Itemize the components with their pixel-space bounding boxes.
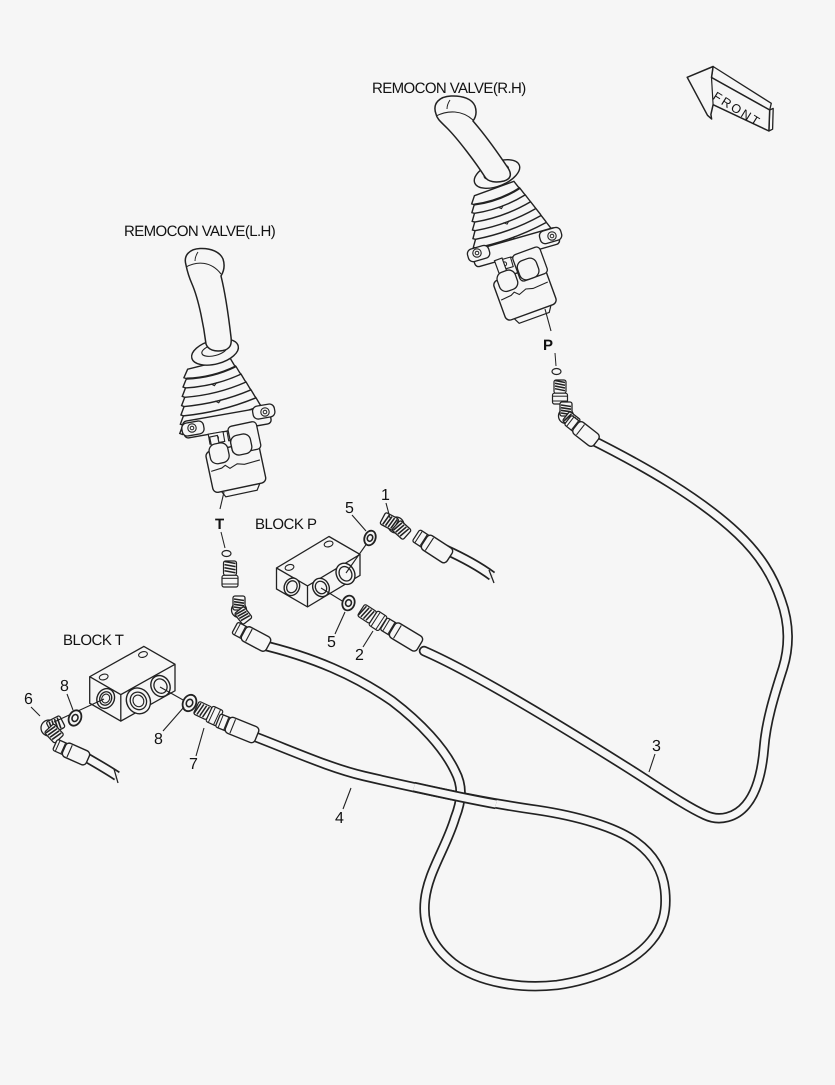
svg-text:5: 5: [327, 634, 336, 651]
svg-text:5: 5: [345, 500, 354, 517]
svg-text:1: 1: [381, 487, 390, 504]
svg-text:REMOCON VALVE(R.H): REMOCON VALVE(R.H): [372, 80, 526, 97]
svg-text:BLOCK P: BLOCK P: [255, 516, 317, 533]
svg-text:T: T: [215, 516, 224, 533]
svg-text:3: 3: [652, 738, 661, 755]
svg-text:REMOCON VALVE(L.H): REMOCON VALVE(L.H): [124, 223, 276, 240]
svg-text:8: 8: [154, 731, 163, 748]
svg-text:6: 6: [24, 691, 33, 708]
svg-text:2: 2: [355, 647, 364, 664]
svg-text:P: P: [543, 337, 553, 354]
svg-text:7: 7: [189, 756, 198, 773]
svg-text:4: 4: [335, 810, 344, 827]
svg-text:BLOCK T: BLOCK T: [63, 632, 124, 649]
svg-text:8: 8: [60, 678, 69, 695]
